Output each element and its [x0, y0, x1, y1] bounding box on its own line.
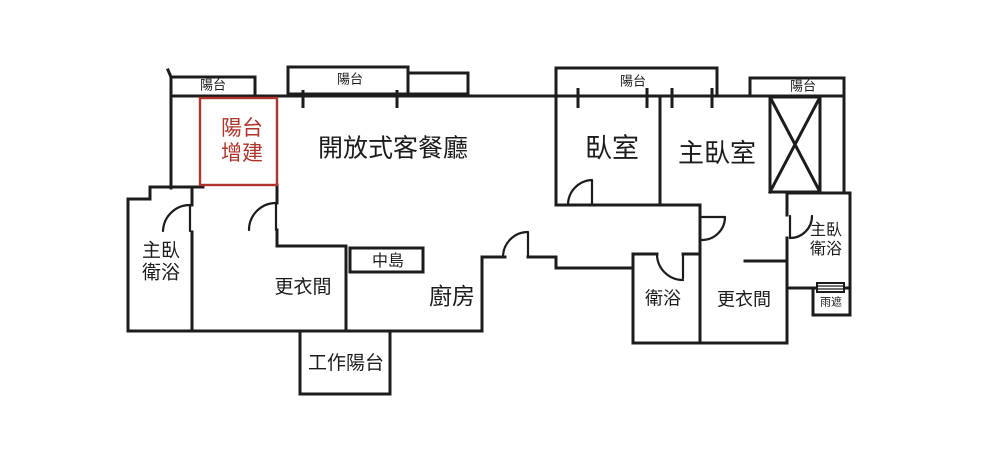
label-balcony-addition: 陽台 增建	[221, 116, 263, 166]
label-bathroom: 衛浴	[645, 290, 681, 311]
door-arc-left-bath	[163, 205, 190, 231]
label-kitchen-island: 中島	[372, 252, 404, 270]
wall-living-southwest	[277, 185, 346, 331]
shaft-cross	[770, 97, 820, 192]
label-master-bath-left-line1: 主臥	[142, 240, 180, 262]
label-balcony-bedrooms: 陽台	[620, 76, 646, 91]
label-walkin-closet-left: 更衣間	[274, 277, 331, 299]
door-arc-bathroom	[657, 254, 683, 280]
door-arc-master-bath-right	[790, 216, 812, 238]
label-balcony-addition-line1: 陽台	[221, 116, 263, 141]
label-kitchen: 廚房	[429, 284, 475, 310]
label-balcony-living: 陽台	[337, 74, 363, 89]
label-master-bedroom: 主臥室	[678, 140, 756, 170]
label-rain-canopy: 雨遮	[820, 297, 842, 310]
wall-kitchen-south	[482, 257, 633, 331]
label-master-bath-right-line1: 主臥	[810, 221, 842, 240]
floorplan-drawing	[0, 0, 1000, 475]
label-master-bath-left-line2: 衛浴	[142, 262, 180, 284]
canopy-grille-icon	[817, 283, 844, 292]
label-balcony-top-right: 陽台	[790, 81, 816, 96]
label-walkin-closet-right: 更衣間	[717, 291, 771, 312]
door-arc-kitchen	[503, 232, 528, 257]
floorplan-canvas: 陽台 陽台 陽台 陽台 陽台 增建 開放式客餐廳 臥室 主臥室 主臥 衛浴 更衣…	[0, 0, 1000, 475]
label-work-balcony: 工作陽台	[308, 353, 384, 375]
label-bedroom: 臥室	[585, 133, 639, 164]
label-balcony-top-left: 陽台	[200, 80, 226, 95]
label-balcony-addition-line2: 增建	[221, 141, 263, 166]
door-arc-master-suite	[702, 217, 725, 240]
label-master-bath-left: 主臥 衛浴	[142, 240, 180, 285]
label-living-dining: 開放式客餐廳	[318, 135, 468, 164]
balcony-living-extension-box	[408, 73, 468, 94]
label-master-bath-right-line2: 衛浴	[810, 240, 842, 259]
label-master-bath-right: 主臥 衛浴	[810, 221, 842, 259]
door-arc-balcony-addition	[249, 203, 276, 230]
door-arc-bedroom	[568, 180, 592, 205]
